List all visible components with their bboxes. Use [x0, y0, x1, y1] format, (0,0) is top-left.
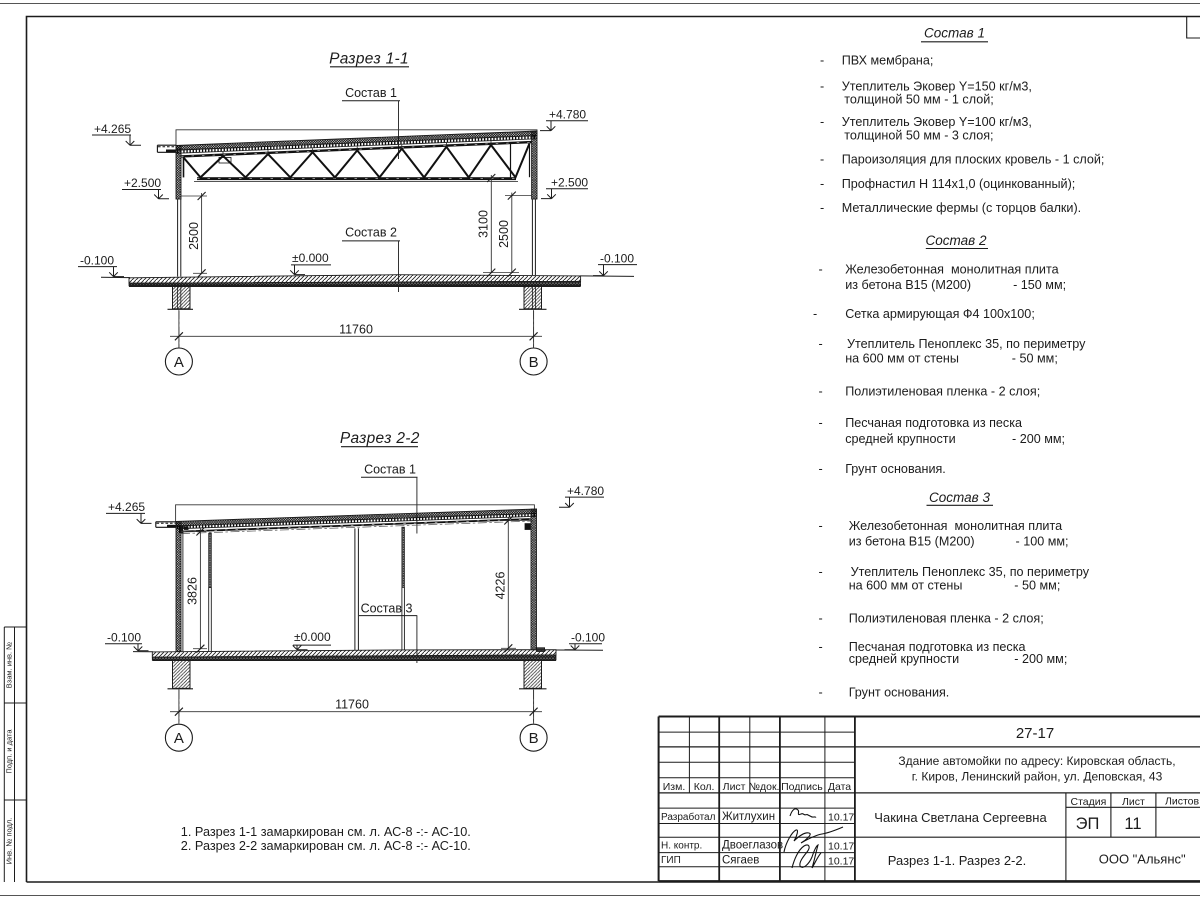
svg-text:Двоеглазов: Двоеглазов	[722, 840, 783, 852]
svg-text:2500: 2500	[497, 220, 511, 248]
svg-text:Состав 3: Состав 3	[929, 490, 990, 505]
svg-text:Листов: Листов	[1165, 796, 1200, 808]
svg-text:средней крупности: средней крупности	[845, 432, 955, 446]
svg-text:Разрез 1-1. Разрез 2-2.: Разрез 1-1. Разрез 2-2.	[888, 853, 1026, 868]
svg-text:+4.780: +4.780	[567, 484, 604, 498]
svg-text:-: -	[813, 307, 817, 321]
svg-text:10.17: 10.17	[828, 840, 854, 852]
svg-text:-: -	[819, 416, 823, 430]
svg-text:27-17: 27-17	[1016, 725, 1054, 742]
svg-text:-: -	[819, 462, 823, 476]
svg-text:толщиной 50 мм - 3 слоя;: толщиной 50 мм - 3 слоя;	[844, 129, 993, 143]
svg-text:- 50 мм;: - 50 мм;	[1014, 578, 1060, 592]
svg-text:Разрез 1-1: Разрез 1-1	[329, 51, 409, 68]
svg-text:- 150 мм;: - 150 мм;	[1013, 278, 1066, 292]
svg-text:средней крупности: средней крупности	[849, 652, 959, 666]
svg-text:Пароизоляция для плоских крове: Пароизоляция для плоских кровель - 1 сло…	[842, 153, 1105, 167]
svg-text:+2.500: +2.500	[124, 176, 161, 190]
svg-text:Железобетонная монолитная пли: Железобетонная монолитная плита	[845, 263, 1058, 277]
svg-text:-: -	[819, 640, 823, 654]
svg-text:10.17: 10.17	[828, 855, 854, 867]
svg-text:-: -	[819, 519, 823, 533]
svg-text:-0.100: -0.100	[107, 630, 141, 644]
svg-text:-: -	[819, 686, 823, 700]
svg-text:№док.: №док.	[749, 781, 780, 793]
svg-text:на 600 мм от стены: на 600 мм от стены	[845, 352, 959, 366]
svg-text:Состав 1: Состав 1	[924, 26, 985, 41]
svg-text:Взам. инв. №: Взам. инв. №	[5, 642, 14, 688]
svg-text:г. Киров, Ленинский район, ул.: г. Киров, Ленинский район, ул. Деповская…	[912, 769, 1163, 783]
svg-text:-: -	[819, 263, 823, 277]
svg-text:Подпись: Подпись	[781, 781, 823, 793]
svg-text:+4.265: +4.265	[108, 500, 145, 514]
svg-text:Дата: Дата	[828, 781, 851, 793]
svg-text:Сягаев: Сягаев	[722, 854, 759, 866]
svg-text:-: -	[819, 565, 823, 579]
svg-text:Песчаная подготовка из песка: Песчаная подготовка из песка	[845, 416, 1022, 430]
svg-text:Утеплитель Эковер Y=100 кг/м3,: Утеплитель Эковер Y=100 кг/м3,	[842, 115, 1032, 129]
svg-text:+4.780: +4.780	[549, 108, 586, 122]
svg-text:Полиэтиленовая пленка - 2 слоя: Полиэтиленовая пленка - 2 слоя;	[849, 611, 1044, 625]
svg-text:ЭП: ЭП	[1076, 815, 1100, 833]
svg-text:±0.000: ±0.000	[294, 630, 331, 644]
svg-text:на 600 мм от стены: на 600 мм от стены	[849, 578, 963, 592]
svg-text:В: В	[529, 354, 539, 371]
svg-text:11760: 11760	[339, 322, 373, 336]
svg-text:Разработал: Разработал	[661, 811, 716, 823]
svg-text:ПВХ мембрана;: ПВХ мембрана;	[842, 54, 934, 68]
svg-text:2500: 2500	[187, 222, 201, 250]
svg-text:Стадия: Стадия	[1071, 796, 1107, 808]
svg-text:Разрез 2-2: Разрез 2-2	[340, 430, 420, 447]
svg-text:-: -	[820, 177, 824, 191]
svg-text:из бетона В15 (М200): из бетона В15 (М200)	[849, 535, 975, 549]
svg-text:4226: 4226	[494, 572, 508, 600]
svg-text:- 200 мм;: - 200 мм;	[1012, 432, 1065, 446]
svg-text:+4.265: +4.265	[94, 122, 131, 136]
svg-text:Здание автомойки по адресу: Ки: Здание автомойки по адресу: Кировская об…	[898, 754, 1175, 768]
svg-text:-: -	[819, 337, 823, 351]
svg-text:Состав 1: Состав 1	[345, 86, 397, 100]
svg-text:-: -	[820, 79, 824, 93]
svg-text:- 100 мм;: - 100 мм;	[1016, 535, 1069, 549]
svg-text:Грунт основания.: Грунт основания.	[849, 686, 950, 700]
svg-text:толщиной 50 мм - 1 слой;: толщиной 50 мм - 1 слой;	[844, 93, 993, 107]
svg-text:1. Разрез 1-1 замаркирован см.: 1. Разрез 1-1 замаркирован см. л. АС-8 -…	[181, 825, 471, 839]
svg-text:2. Разрез 2-2 замаркирован см.: 2. Разрез 2-2 замаркирован см. л. АС-8 -…	[181, 839, 471, 853]
svg-text:Житлухин: Житлухин	[722, 811, 775, 823]
svg-text:Кол.: Кол.	[694, 781, 715, 793]
svg-text:Инв. № подл.: Инв. № подл.	[5, 818, 14, 865]
svg-text:3826: 3826	[186, 577, 200, 605]
svg-text:-: -	[820, 54, 824, 68]
svg-text:Н. контр.: Н. контр.	[661, 840, 702, 851]
svg-text:±0.000: ±0.000	[292, 251, 329, 265]
svg-text:из бетона В15 (М200): из бетона В15 (М200)	[845, 278, 971, 292]
svg-text:ООО "Альянс": ООО "Альянс"	[1099, 852, 1186, 867]
svg-text:Грунт основания.: Грунт основания.	[845, 462, 946, 476]
svg-text:Сетка армирующая Ф4 100х100;: Сетка армирующая Ф4 100х100;	[845, 307, 1035, 321]
svg-text:А: А	[174, 354, 184, 371]
svg-text:-0.100: -0.100	[571, 630, 605, 644]
svg-text:В: В	[529, 730, 539, 747]
svg-text:Утеплитель Пеноплекс 35, по пе: Утеплитель Пеноплекс 35, по периметру	[851, 565, 1090, 579]
svg-text:Чакина Светлана Сергеевна: Чакина Светлана Сергеевна	[874, 810, 1047, 825]
svg-text:Профнастил Н 114х1,0 (оцинкова: Профнастил Н 114х1,0 (оцинкованный);	[842, 177, 1076, 191]
svg-text:-: -	[820, 153, 824, 167]
svg-text:Утеплитель Пеноплекс 35, по пе: Утеплитель Пеноплекс 35, по периметру	[847, 337, 1086, 351]
svg-text:Подп. и дата: Подп. и дата	[5, 729, 14, 774]
svg-text:+2.500: +2.500	[551, 176, 588, 190]
svg-text:Полиэтиленовая пленка - 2 слоя: Полиэтиленовая пленка - 2 слоя;	[845, 385, 1040, 399]
svg-text:- 50 мм;: - 50 мм;	[1012, 352, 1058, 366]
svg-text:-0.100: -0.100	[600, 251, 634, 265]
svg-text:11: 11	[1124, 815, 1141, 833]
svg-text:А: А	[174, 730, 184, 747]
svg-text:ГИП: ГИП	[661, 855, 681, 866]
svg-text:10.17: 10.17	[828, 812, 854, 824]
svg-text:Лист: Лист	[1122, 796, 1145, 808]
svg-text:11760: 11760	[335, 698, 369, 712]
svg-text:-0.100: -0.100	[80, 253, 114, 267]
svg-text:-: -	[820, 201, 824, 215]
svg-text:Лист: Лист	[723, 781, 746, 793]
svg-text:-: -	[820, 115, 824, 129]
svg-text:Металлические фермы (с торцов: Металлические фермы (с торцов балки).	[842, 201, 1081, 215]
svg-text:- 200 мм;: - 200 мм;	[1014, 652, 1067, 666]
svg-text:Железобетонная монолитная пли: Железобетонная монолитная плита	[849, 519, 1062, 533]
svg-text:Состав 1: Состав 1	[364, 462, 416, 476]
svg-text:Изм.: Изм.	[663, 781, 686, 793]
svg-text:Состав 2: Состав 2	[926, 233, 987, 248]
svg-text:Утеплитель Эковер Y=150 кг/м3,: Утеплитель Эковер Y=150 кг/м3,	[842, 79, 1032, 93]
svg-text:Состав 2: Состав 2	[345, 226, 397, 240]
svg-text:-: -	[819, 385, 823, 399]
svg-text:3100: 3100	[477, 210, 491, 238]
svg-text:-: -	[819, 611, 823, 625]
